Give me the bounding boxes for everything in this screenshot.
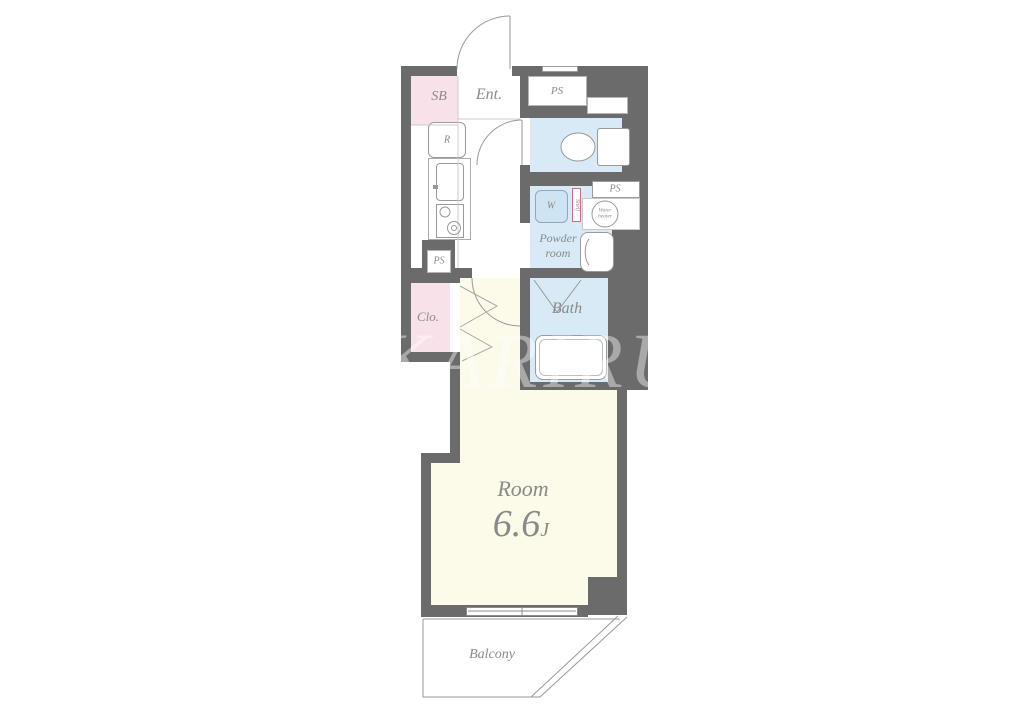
room-size-label: 6.6J — [493, 502, 549, 546]
ps-kitchen-label: PS — [433, 256, 444, 267]
shoebox-label: SB — [431, 89, 447, 105]
ps-top-label: PS — [551, 85, 563, 97]
wall-bath-left — [520, 278, 530, 390]
floorplan: SB Ent. PS R PS W Shelf PS Water heater … — [0, 0, 1024, 724]
ps-side-label: PS — [609, 184, 620, 195]
closet-label: Clo. — [417, 309, 439, 325]
bath-label: Bath — [552, 300, 582, 318]
powder-room-line2: room — [546, 246, 571, 260]
washer-label: W — [547, 201, 555, 212]
kitchen-sink — [436, 163, 464, 201]
balcony-diagonal-outer — [540, 617, 627, 697]
water-heater-label: Water heater — [598, 209, 612, 220]
balcony-label: Balcony — [469, 647, 515, 663]
wall-room-left-upper — [450, 362, 460, 463]
powder-room-label: Powder room — [539, 231, 576, 261]
refrigerator-label: R — [444, 135, 450, 146]
entrance-door-arc — [457, 16, 510, 69]
room-label: Room — [497, 476, 548, 502]
wall-bath-bottom — [520, 382, 648, 390]
wall-room-left-lower — [421, 455, 431, 617]
powder-room-line1: Powder — [539, 231, 576, 245]
balcony-diagonal-inner — [531, 616, 618, 697]
toilet-door-arc — [477, 120, 522, 165]
top-wall-window — [542, 66, 578, 72]
room-area-mid — [460, 390, 617, 463]
room-size-value: 6.6 — [493, 503, 541, 545]
bathtub-inner — [539, 339, 603, 376]
shelf-label: Shelf — [574, 199, 580, 211]
vanity-sink — [580, 232, 614, 272]
room-area-upper — [460, 278, 520, 390]
wall-bath-right — [608, 278, 648, 382]
balcony-window — [466, 607, 578, 616]
kitchen-stove — [436, 204, 464, 238]
entrance-label: Ent. — [476, 86, 502, 104]
room-size-unit: J — [540, 519, 549, 541]
water-heater-line2: heater — [598, 213, 612, 219]
ps-top-step — [587, 97, 628, 114]
wall-closet-bottom — [401, 352, 460, 362]
toilet-tank — [597, 128, 630, 166]
wall-left — [401, 66, 411, 362]
wall-room-corner-block — [588, 577, 627, 615]
